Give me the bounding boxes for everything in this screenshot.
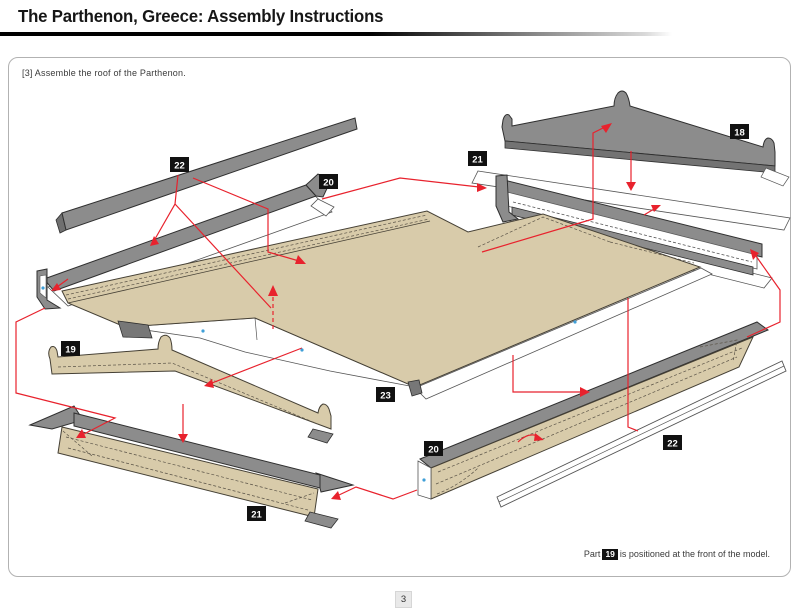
svg-text:22: 22 xyxy=(667,439,678,450)
svg-text:21: 21 xyxy=(472,155,483,166)
instruction-page: The Parthenon, Greece: Assembly Instruct… xyxy=(0,0,800,610)
part-label-23: 23 xyxy=(376,387,395,402)
arrowhead xyxy=(626,182,636,191)
part-label-18: 18 xyxy=(730,124,749,139)
footer-part-ref: 19 xyxy=(602,549,617,560)
svg-text:21: 21 xyxy=(251,510,262,521)
registration-dot xyxy=(300,348,303,351)
footer-note-text: is positioned at the front of the model. xyxy=(620,549,770,559)
svg-text:20: 20 xyxy=(428,445,439,456)
arrowhead xyxy=(331,491,341,500)
part-label-20-bottom: 20 xyxy=(424,441,443,456)
part-21-bottom-gutter xyxy=(30,406,353,528)
footer-note: Part19is positioned at the front of the … xyxy=(584,549,770,560)
svg-text:19: 19 xyxy=(65,345,76,356)
part-label-22-bottom: 22 xyxy=(663,435,682,450)
page-number: 3 xyxy=(395,591,412,608)
registration-dot xyxy=(422,478,425,481)
registration-dot xyxy=(201,329,204,332)
assembly-diagram: 22 20 21 18 19 23 xyxy=(0,0,800,610)
part-label-19: 19 xyxy=(61,341,80,356)
part-label-22-top: 22 xyxy=(170,157,189,172)
part-label-21-top: 21 xyxy=(468,151,487,166)
part-label-20-top: 20 xyxy=(319,174,338,189)
registration-dot xyxy=(41,286,44,289)
svg-text:20: 20 xyxy=(323,178,334,189)
footer-part-prefix: Part xyxy=(584,549,601,559)
svg-text:18: 18 xyxy=(734,128,745,139)
part-label-21-bottom: 21 xyxy=(247,506,266,521)
svg-text:23: 23 xyxy=(380,391,391,402)
registration-dot xyxy=(573,320,576,323)
svg-text:22: 22 xyxy=(174,161,185,172)
